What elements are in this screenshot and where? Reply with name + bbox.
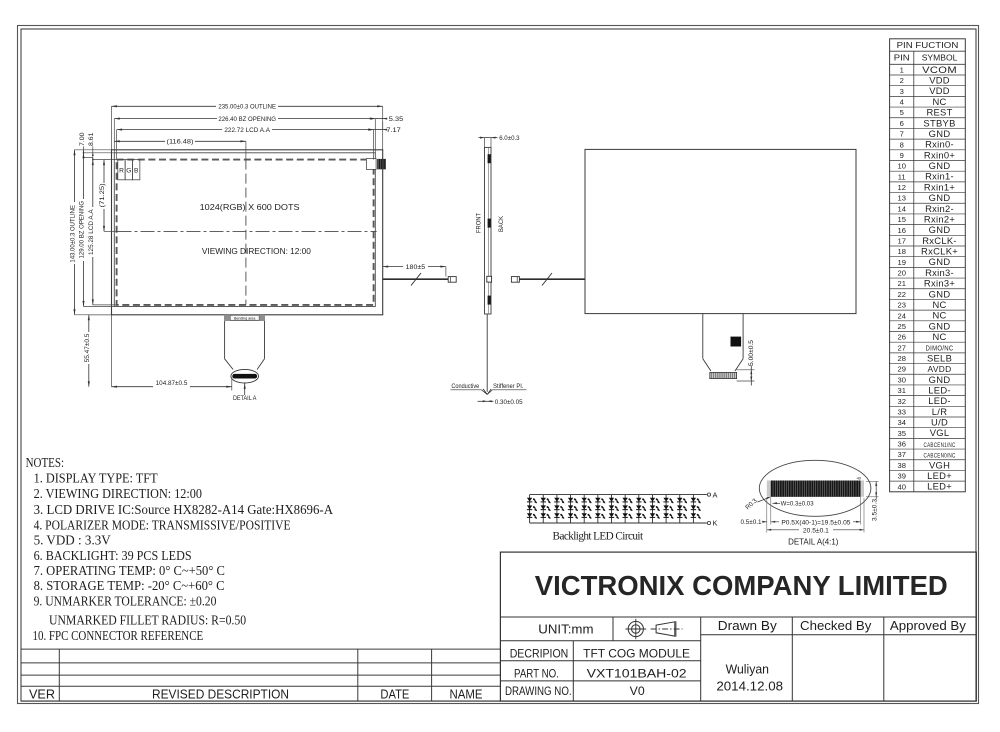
svg-text:REST: REST [926, 107, 952, 118]
svg-text:8: 8 [900, 140, 904, 149]
svg-text:38: 38 [897, 461, 905, 470]
svg-text:(116.48): (116.48) [167, 139, 194, 146]
svg-text:Rxin2-: Rxin2- [925, 203, 954, 214]
svg-text:129.00 BZ OPENING: 129.00 BZ OPENING [79, 201, 86, 259]
svg-text:DATE: DATE [380, 686, 409, 701]
svg-text:PIN: PIN [894, 53, 910, 63]
svg-text:40: 40 [857, 475, 862, 480]
svg-text:P0.5X(40-1)=19.5±0.05: P0.5X(40-1)=19.5±0.05 [781, 520, 850, 527]
svg-text:LED-: LED- [928, 384, 951, 395]
svg-text:Rxin1-: Rxin1- [925, 171, 954, 182]
svg-text:55.47±0.5: 55.47±0.5 [84, 333, 91, 362]
svg-text:BACK: BACK [498, 216, 505, 232]
svg-text:28: 28 [897, 354, 905, 363]
svg-text:Approved By: Approved By [890, 618, 967, 633]
svg-text:Checked By: Checked By [800, 618, 872, 633]
svg-text:DETAIL A: DETAIL A [233, 395, 257, 402]
svg-text:7.17: 7.17 [386, 127, 401, 134]
svg-text:1: 1 [900, 65, 904, 74]
svg-text:Conductive: Conductive [451, 383, 479, 390]
svg-text:Stiffener PI.: Stiffener PI. [493, 383, 523, 390]
svg-text:NAME: NAME [450, 686, 483, 701]
svg-text:104.87±0.5: 104.87±0.5 [156, 380, 188, 387]
svg-text:3.5±0.3: 3.5±0.3 [872, 499, 879, 521]
svg-text:2014.12.08: 2014.12.08 [716, 678, 783, 693]
svg-text:24: 24 [897, 311, 905, 320]
svg-text:26: 26 [897, 333, 905, 342]
svg-text:7. OPERATING TEMP: 0° C~+50° C: 7. OPERATING TEMP: 0° C~+50° C [34, 563, 225, 578]
svg-text:AVDD: AVDD [928, 365, 952, 374]
svg-text:Drawn By: Drawn By [718, 618, 778, 633]
svg-text:143.00±0.3 OUTLINE: 143.00±0.3 OUTLINE [70, 205, 77, 263]
svg-text:2: 2 [900, 76, 904, 85]
svg-text:RxCLK+: RxCLK+ [921, 246, 958, 257]
svg-text:STBYB: STBYB [923, 117, 955, 128]
svg-text:NC: NC [932, 310, 946, 321]
svg-text:UNMARKED FILLET RADIUS: R=0.50: UNMARKED FILLET RADIUS: R=0.50 [49, 612, 246, 627]
svg-text:19: 19 [897, 258, 905, 267]
svg-text:0.5±0.1: 0.5±0.1 [741, 519, 762, 526]
svg-text:CABCEN1/NC: CABCEN1/NC [924, 442, 956, 449]
svg-text:17: 17 [897, 236, 905, 245]
svg-text:NC: NC [932, 299, 946, 310]
svg-text:7: 7 [900, 130, 904, 139]
svg-text:GND: GND [929, 192, 951, 203]
svg-text:125.28 LCD A.A: 125.28 LCD A.A [88, 209, 95, 255]
svg-text:UNIT:mm: UNIT:mm [538, 622, 593, 637]
svg-text:23: 23 [897, 301, 905, 310]
svg-text:6.0±0.3: 6.0±0.3 [499, 135, 520, 142]
svg-text:18: 18 [897, 247, 905, 256]
svg-text:Rxin3+: Rxin3+ [924, 278, 955, 289]
svg-text:VICTRONIX COMPANY LIMITED: VICTRONIX COMPANY LIMITED [535, 570, 948, 601]
svg-text:Rxin0-: Rxin0- [925, 139, 954, 150]
svg-text:RxCLK-: RxCLK- [922, 235, 957, 246]
svg-text:A: A [713, 490, 718, 499]
svg-text:180±5: 180±5 [406, 264, 426, 271]
svg-text:R: R [119, 168, 124, 175]
svg-text:222.72 LCD A.A: 222.72 LCD A.A [224, 127, 270, 134]
svg-text:20.5±0.1: 20.5±0.1 [803, 528, 829, 535]
svg-text:5. VDD : 3.3V: 5. VDD : 3.3V [34, 533, 112, 548]
svg-text:5.35: 5.35 [389, 116, 404, 123]
svg-text:11: 11 [898, 172, 906, 181]
svg-text:GND: GND [929, 374, 951, 385]
svg-text:40: 40 [897, 482, 905, 491]
svg-text:GND: GND [929, 128, 951, 139]
svg-text:SELB: SELB [927, 352, 952, 363]
svg-text:25: 25 [897, 322, 905, 331]
svg-text:15: 15 [897, 215, 905, 224]
svg-text:TFT COG MODULE: TFT COG MODULE [583, 647, 690, 661]
svg-text:36: 36 [897, 440, 905, 449]
svg-text:29: 29 [897, 365, 905, 374]
svg-text:Rxin0+: Rxin0+ [924, 149, 955, 160]
svg-text:27: 27 [897, 343, 905, 352]
svg-text:LED+: LED+ [927, 470, 952, 481]
svg-text:226.40 BZ OPENING: 226.40 BZ OPENING [218, 116, 276, 123]
svg-text:22: 22 [897, 290, 905, 299]
svg-text:12: 12 [897, 183, 905, 192]
svg-text:7.00: 7.00 [79, 132, 86, 146]
svg-text:Rxin2+: Rxin2+ [924, 213, 955, 224]
svg-text:Backlight LED Circuit: Backlight LED Circuit [553, 531, 644, 543]
svg-text:4. POLARIZER MODE: TRANSMISSIV: 4. POLARIZER MODE: TRANSMISSIVE/POSITIVE [34, 518, 291, 533]
svg-text:VGL: VGL [930, 427, 950, 438]
svg-text:FRONT: FRONT [476, 213, 483, 233]
svg-text:8. STORAGE TEMP: -20° C~+60° C: 8. STORAGE TEMP: -20° C~+60° C [34, 578, 225, 593]
svg-text:3: 3 [900, 87, 904, 96]
svg-text:1. DISPLAY TYPE: TFT: 1. DISPLAY TYPE: TFT [34, 471, 158, 486]
svg-text:VIEWING DIRECTION: 12:00: VIEWING DIRECTION: 12:00 [202, 246, 311, 256]
svg-text:VXT101BAH-02: VXT101BAH-02 [587, 667, 687, 681]
svg-text:2. VIEWING DIRECTION: 12:00: 2. VIEWING DIRECTION: 12:00 [34, 486, 203, 501]
svg-text:9. UNMARKER TOLERANCE: ±0.20: 9. UNMARKER TOLERANCE: ±0.20 [34, 594, 217, 609]
svg-text:VER: VER [29, 686, 55, 701]
svg-text:35: 35 [897, 429, 905, 438]
svg-text:DETAIL A(4:1): DETAIL A(4:1) [788, 537, 838, 547]
svg-text:Wuliyan: Wuliyan [726, 661, 769, 676]
svg-text:NC: NC [932, 96, 946, 107]
svg-text:R0.3: R0.3 [744, 497, 759, 511]
svg-text:LED-: LED- [928, 395, 951, 406]
svg-text:PIN FUCTION: PIN FUCTION [897, 40, 959, 50]
svg-text:PART NO.: PART NO. [514, 667, 559, 681]
svg-text:0.30±0.05: 0.30±0.05 [495, 399, 523, 406]
svg-text:1024(RGB) X 600 DOTS: 1024(RGB) X 600 DOTS [200, 202, 300, 212]
svg-text:GND: GND [929, 224, 951, 235]
svg-text:Rxin3-: Rxin3- [925, 267, 954, 278]
svg-text:GND: GND [929, 256, 951, 267]
svg-text:DECRIPION: DECRIPION [510, 647, 569, 661]
svg-text:SYMBOL: SYMBOL [922, 53, 958, 63]
svg-text:6: 6 [900, 119, 904, 128]
svg-text:5.00±0.5: 5.00±0.5 [748, 340, 755, 366]
svg-text:5: 5 [900, 108, 904, 117]
svg-text:14: 14 [897, 204, 905, 213]
svg-text:34: 34 [897, 418, 905, 427]
svg-text:31: 31 [897, 386, 905, 395]
svg-text:20: 20 [897, 269, 905, 278]
svg-text:37: 37 [897, 450, 905, 459]
svg-text:NC: NC [932, 331, 946, 342]
svg-text:32: 32 [897, 397, 905, 406]
svg-text:VDD: VDD [929, 75, 950, 86]
svg-text:8.61: 8.61 [88, 132, 95, 146]
svg-text:9: 9 [900, 151, 904, 160]
svg-text:REVISED DESCRIPTION: REVISED DESCRIPTION [152, 686, 289, 701]
svg-text:30: 30 [897, 375, 905, 384]
svg-text:3. LCD DRIVE IC:Source HX8282-: 3. LCD DRIVE IC:Source HX8282-A14 Gate:H… [34, 502, 334, 517]
svg-text:39: 39 [897, 472, 905, 481]
svg-text:U/D: U/D [931, 417, 948, 428]
svg-text:VGH: VGH [929, 459, 950, 470]
svg-text:(71.25): (71.25) [99, 183, 106, 207]
svg-text:VCOM: VCOM [922, 64, 957, 75]
svg-text:235.00±0.3 OUTLINE: 235.00±0.3 OUTLINE [218, 104, 276, 111]
svg-text:W=0.3±0.03: W=0.3±0.03 [781, 501, 814, 508]
svg-text:6. BACKLIGHT: 39 PCS LEDS: 6. BACKLIGHT: 39 PCS LEDS [34, 548, 192, 563]
svg-text:21: 21 [897, 279, 905, 288]
svg-text:NOTES:: NOTES: [26, 455, 64, 470]
svg-text:DRAWING NO.: DRAWING NO. [505, 684, 572, 698]
svg-text:LED+: LED+ [927, 481, 952, 492]
svg-text:33: 33 [897, 407, 905, 416]
svg-text:GND: GND [929, 160, 951, 171]
svg-text:K: K [713, 519, 718, 528]
svg-text:L/R: L/R [932, 406, 948, 417]
svg-text:B: B [134, 168, 139, 175]
svg-text:GND: GND [929, 288, 951, 299]
svg-text:13: 13 [897, 194, 905, 203]
svg-text:V0: V0 [630, 684, 645, 698]
svg-text:GND: GND [929, 320, 951, 331]
svg-text:Rxin1+: Rxin1+ [924, 181, 955, 192]
svg-text:10. FPC CONNECTOR REFERENCE: 10. FPC CONNECTOR REFERENCE [33, 628, 204, 643]
svg-text:VDD: VDD [929, 85, 950, 96]
svg-text:Bending area: Bending area [234, 316, 255, 320]
svg-text:10: 10 [897, 162, 905, 171]
svg-text:16: 16 [897, 226, 905, 235]
svg-text:4: 4 [900, 98, 904, 107]
svg-text:G: G [126, 168, 131, 175]
